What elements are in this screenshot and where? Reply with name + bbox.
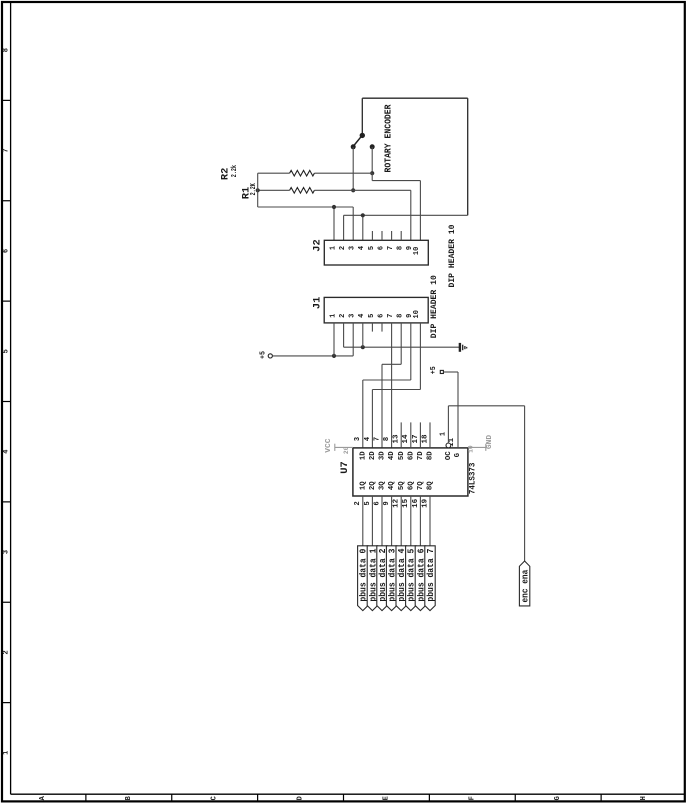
svg-text:6: 6 xyxy=(373,501,381,505)
svg-text:5: 5 xyxy=(368,314,376,318)
svg-text:74LS373: 74LS373 xyxy=(469,462,478,494)
svg-text:8Q: 8Q xyxy=(427,481,435,490)
svg-text:5: 5 xyxy=(3,349,11,353)
svg-text:2.2k: 2.2k xyxy=(231,165,239,178)
svg-text:7: 7 xyxy=(387,314,395,318)
svg-text:+5: +5 xyxy=(430,366,438,374)
svg-text:4: 4 xyxy=(3,450,11,454)
svg-text:3: 3 xyxy=(354,437,362,441)
svg-text:6Q: 6Q xyxy=(407,481,415,490)
svg-text:R2: R2 xyxy=(221,168,232,181)
svg-text:6D: 6D xyxy=(407,451,415,460)
svg-text:U7: U7 xyxy=(340,461,351,474)
svg-text:4Q: 4Q xyxy=(388,481,396,490)
svg-text:1D: 1D xyxy=(359,451,367,460)
svg-text:20: 20 xyxy=(343,446,350,454)
svg-text:1: 1 xyxy=(439,432,447,436)
svg-text:2: 2 xyxy=(354,501,362,505)
svg-text:10: 10 xyxy=(413,310,421,318)
svg-text:6: 6 xyxy=(377,246,385,250)
svg-text:7: 7 xyxy=(387,246,395,250)
svg-text:pbus data 7: pbus data 7 xyxy=(426,549,436,602)
svg-text:6: 6 xyxy=(3,249,11,253)
svg-text:7D: 7D xyxy=(417,451,425,460)
svg-text:8D: 8D xyxy=(427,451,435,460)
svg-text:9: 9 xyxy=(383,501,391,505)
svg-text:8: 8 xyxy=(397,314,405,318)
svg-text:16: 16 xyxy=(412,499,420,508)
svg-text:17: 17 xyxy=(412,435,420,444)
svg-text:1: 1 xyxy=(329,246,337,250)
svg-text:J1: J1 xyxy=(313,297,324,310)
svg-text:5: 5 xyxy=(364,501,372,505)
svg-text:4: 4 xyxy=(364,437,372,441)
svg-text:7: 7 xyxy=(3,148,11,152)
svg-text:ROTARY ENCODER: ROTARY ENCODER xyxy=(382,104,393,172)
svg-text:2Q: 2Q xyxy=(369,481,377,490)
svg-text:J2: J2 xyxy=(313,239,324,252)
svg-text:3Q: 3Q xyxy=(379,481,387,490)
svg-text:18: 18 xyxy=(421,435,429,444)
svg-text:19: 19 xyxy=(421,499,429,508)
svg-text:2.2K: 2.2K xyxy=(250,183,258,196)
svg-text:7Q: 7Q xyxy=(417,481,425,490)
svg-text:5Q: 5Q xyxy=(398,481,406,490)
svg-text:13: 13 xyxy=(393,435,401,444)
svg-text:G: G xyxy=(454,453,462,457)
svg-text:6: 6 xyxy=(377,314,385,318)
svg-text:2: 2 xyxy=(3,650,11,654)
svg-text:15: 15 xyxy=(402,499,410,508)
svg-text:5D: 5D xyxy=(398,451,406,460)
svg-text:DIP HEADER 10: DIP HEADER 10 xyxy=(430,275,439,338)
svg-text:8: 8 xyxy=(397,246,405,250)
svg-text:OC: OC xyxy=(445,451,453,460)
svg-text:H: H xyxy=(640,796,648,800)
svg-text:C: C xyxy=(211,796,219,800)
svg-text:2: 2 xyxy=(339,314,347,318)
svg-text:8: 8 xyxy=(383,437,391,441)
svg-text:enc ena: enc ena xyxy=(520,569,530,602)
svg-text:DIP HEADER 10: DIP HEADER 10 xyxy=(448,224,457,287)
svg-text:3: 3 xyxy=(3,550,11,554)
svg-text:VCC: VCC xyxy=(325,438,333,453)
svg-text:7: 7 xyxy=(373,437,381,441)
svg-text:2D: 2D xyxy=(369,451,377,460)
svg-text:3D: 3D xyxy=(379,451,387,460)
svg-text:D: D xyxy=(297,796,305,800)
svg-text:8: 8 xyxy=(3,48,11,52)
svg-text:G: G xyxy=(554,796,562,800)
svg-text:2: 2 xyxy=(339,246,347,250)
svg-text:4D: 4D xyxy=(388,451,396,460)
svg-text:10: 10 xyxy=(413,247,421,255)
svg-text:4: 4 xyxy=(358,246,366,250)
svg-text:3: 3 xyxy=(349,246,357,250)
svg-text:4: 4 xyxy=(358,314,366,318)
svg-text:12: 12 xyxy=(393,499,401,508)
svg-text:GND: GND xyxy=(486,434,494,449)
svg-text:1: 1 xyxy=(3,751,11,755)
svg-text:3: 3 xyxy=(349,314,357,318)
svg-text:5: 5 xyxy=(368,246,376,250)
svg-text:10: 10 xyxy=(468,445,475,453)
svg-text:1Q: 1Q xyxy=(359,481,367,490)
svg-text:E: E xyxy=(383,796,391,800)
svg-text:+5: +5 xyxy=(259,351,267,359)
svg-text:1: 1 xyxy=(329,314,337,318)
svg-text:14: 14 xyxy=(402,435,410,444)
svg-text:F: F xyxy=(468,796,476,800)
